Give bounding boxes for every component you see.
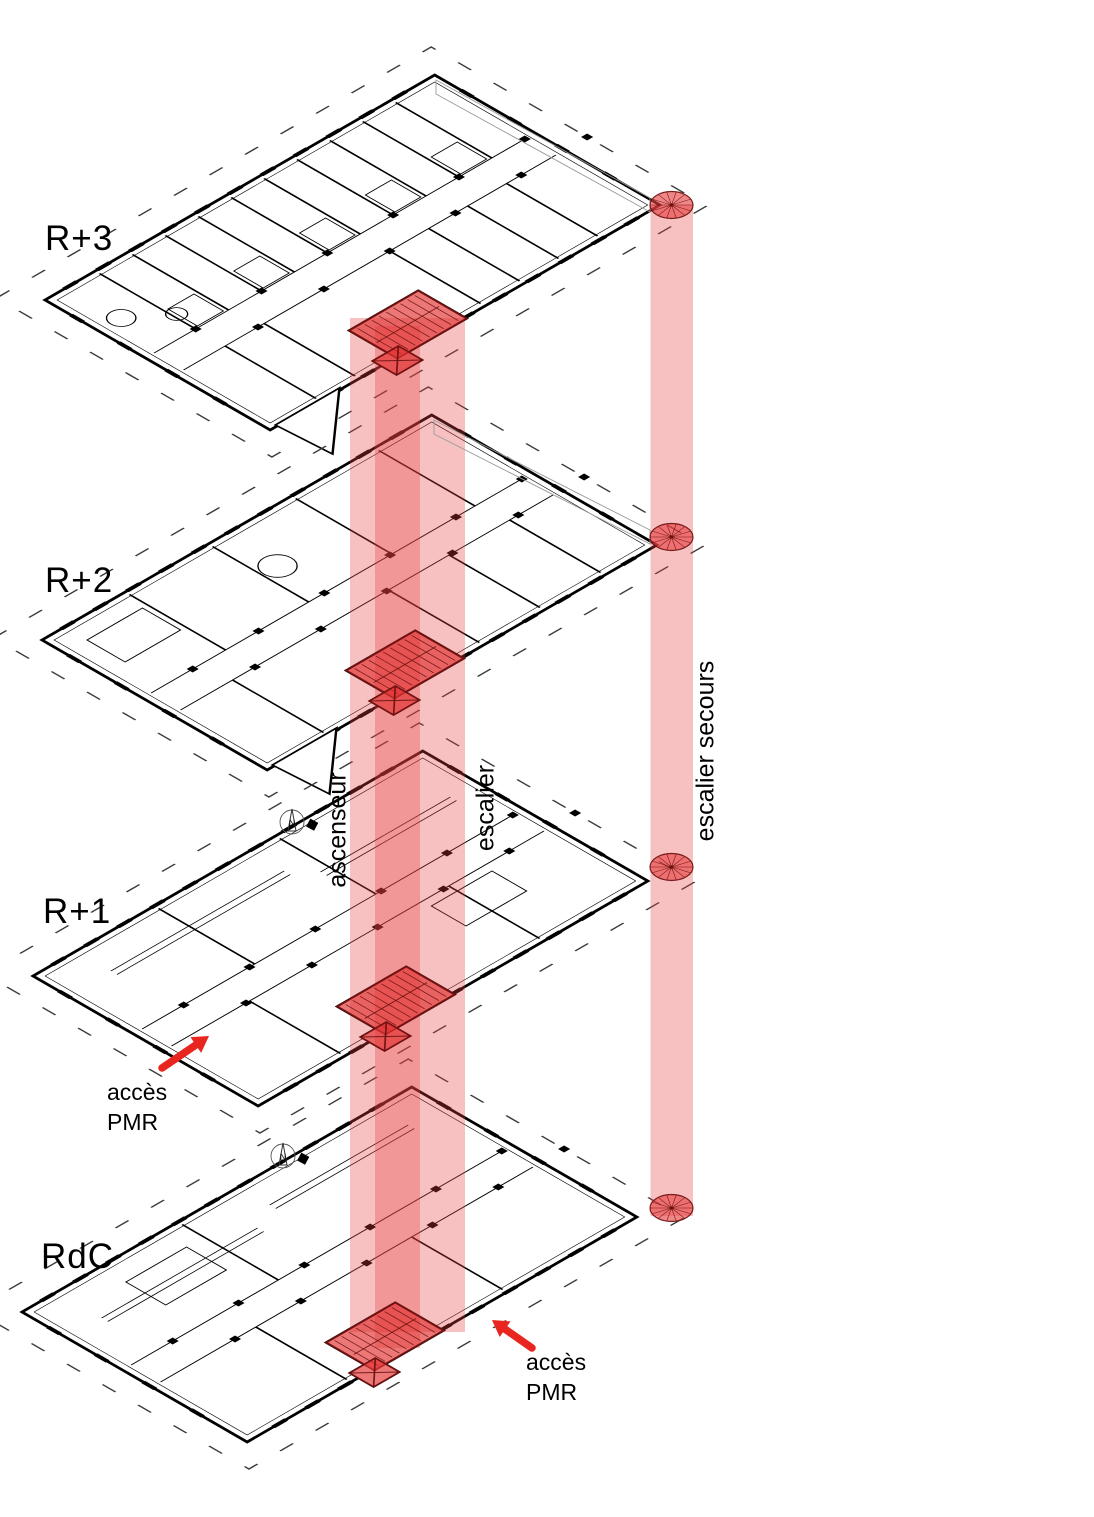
annotation-text-line: PMR xyxy=(526,1378,586,1408)
annotation-text-line: accès xyxy=(107,1078,167,1108)
band-escalier-secours xyxy=(651,205,694,1216)
exploded-axonometric-diagram: NN R+3 R+2 R+1 RdC ascenseur escalier es… xyxy=(0,0,1094,1517)
annotation-text-line: PMR xyxy=(107,1108,167,1138)
spiral-stair-rdc xyxy=(650,1195,693,1222)
acces-pmr-arrow-rdc xyxy=(492,1320,532,1348)
floor-label-r2: R+2 xyxy=(45,561,113,601)
spiral-stair-r1 xyxy=(650,854,693,881)
band-ascenseur xyxy=(375,326,420,1348)
floor-label-rdc: RdC xyxy=(41,1237,114,1277)
svg-text:N: N xyxy=(289,818,296,828)
floor-label-r1: R+1 xyxy=(43,892,111,932)
label-escalier: escalier xyxy=(472,765,501,851)
label-escalier-secours: escalier secours xyxy=(692,661,721,842)
label-ascenseur: ascenseur xyxy=(324,772,353,887)
floor-label-r3: R+3 xyxy=(45,219,113,259)
diagram-canvas: NN xyxy=(0,0,1094,1517)
spiral-stair-r3 xyxy=(650,192,693,219)
annotation-text-line: accès xyxy=(526,1348,586,1378)
spiral-stair-r2 xyxy=(650,524,693,551)
annotation-acces-pmr-rdc: accès PMR xyxy=(526,1348,586,1408)
annotation-acces-pmr-r1: accès PMR xyxy=(107,1078,167,1138)
svg-text:N: N xyxy=(280,1152,287,1162)
